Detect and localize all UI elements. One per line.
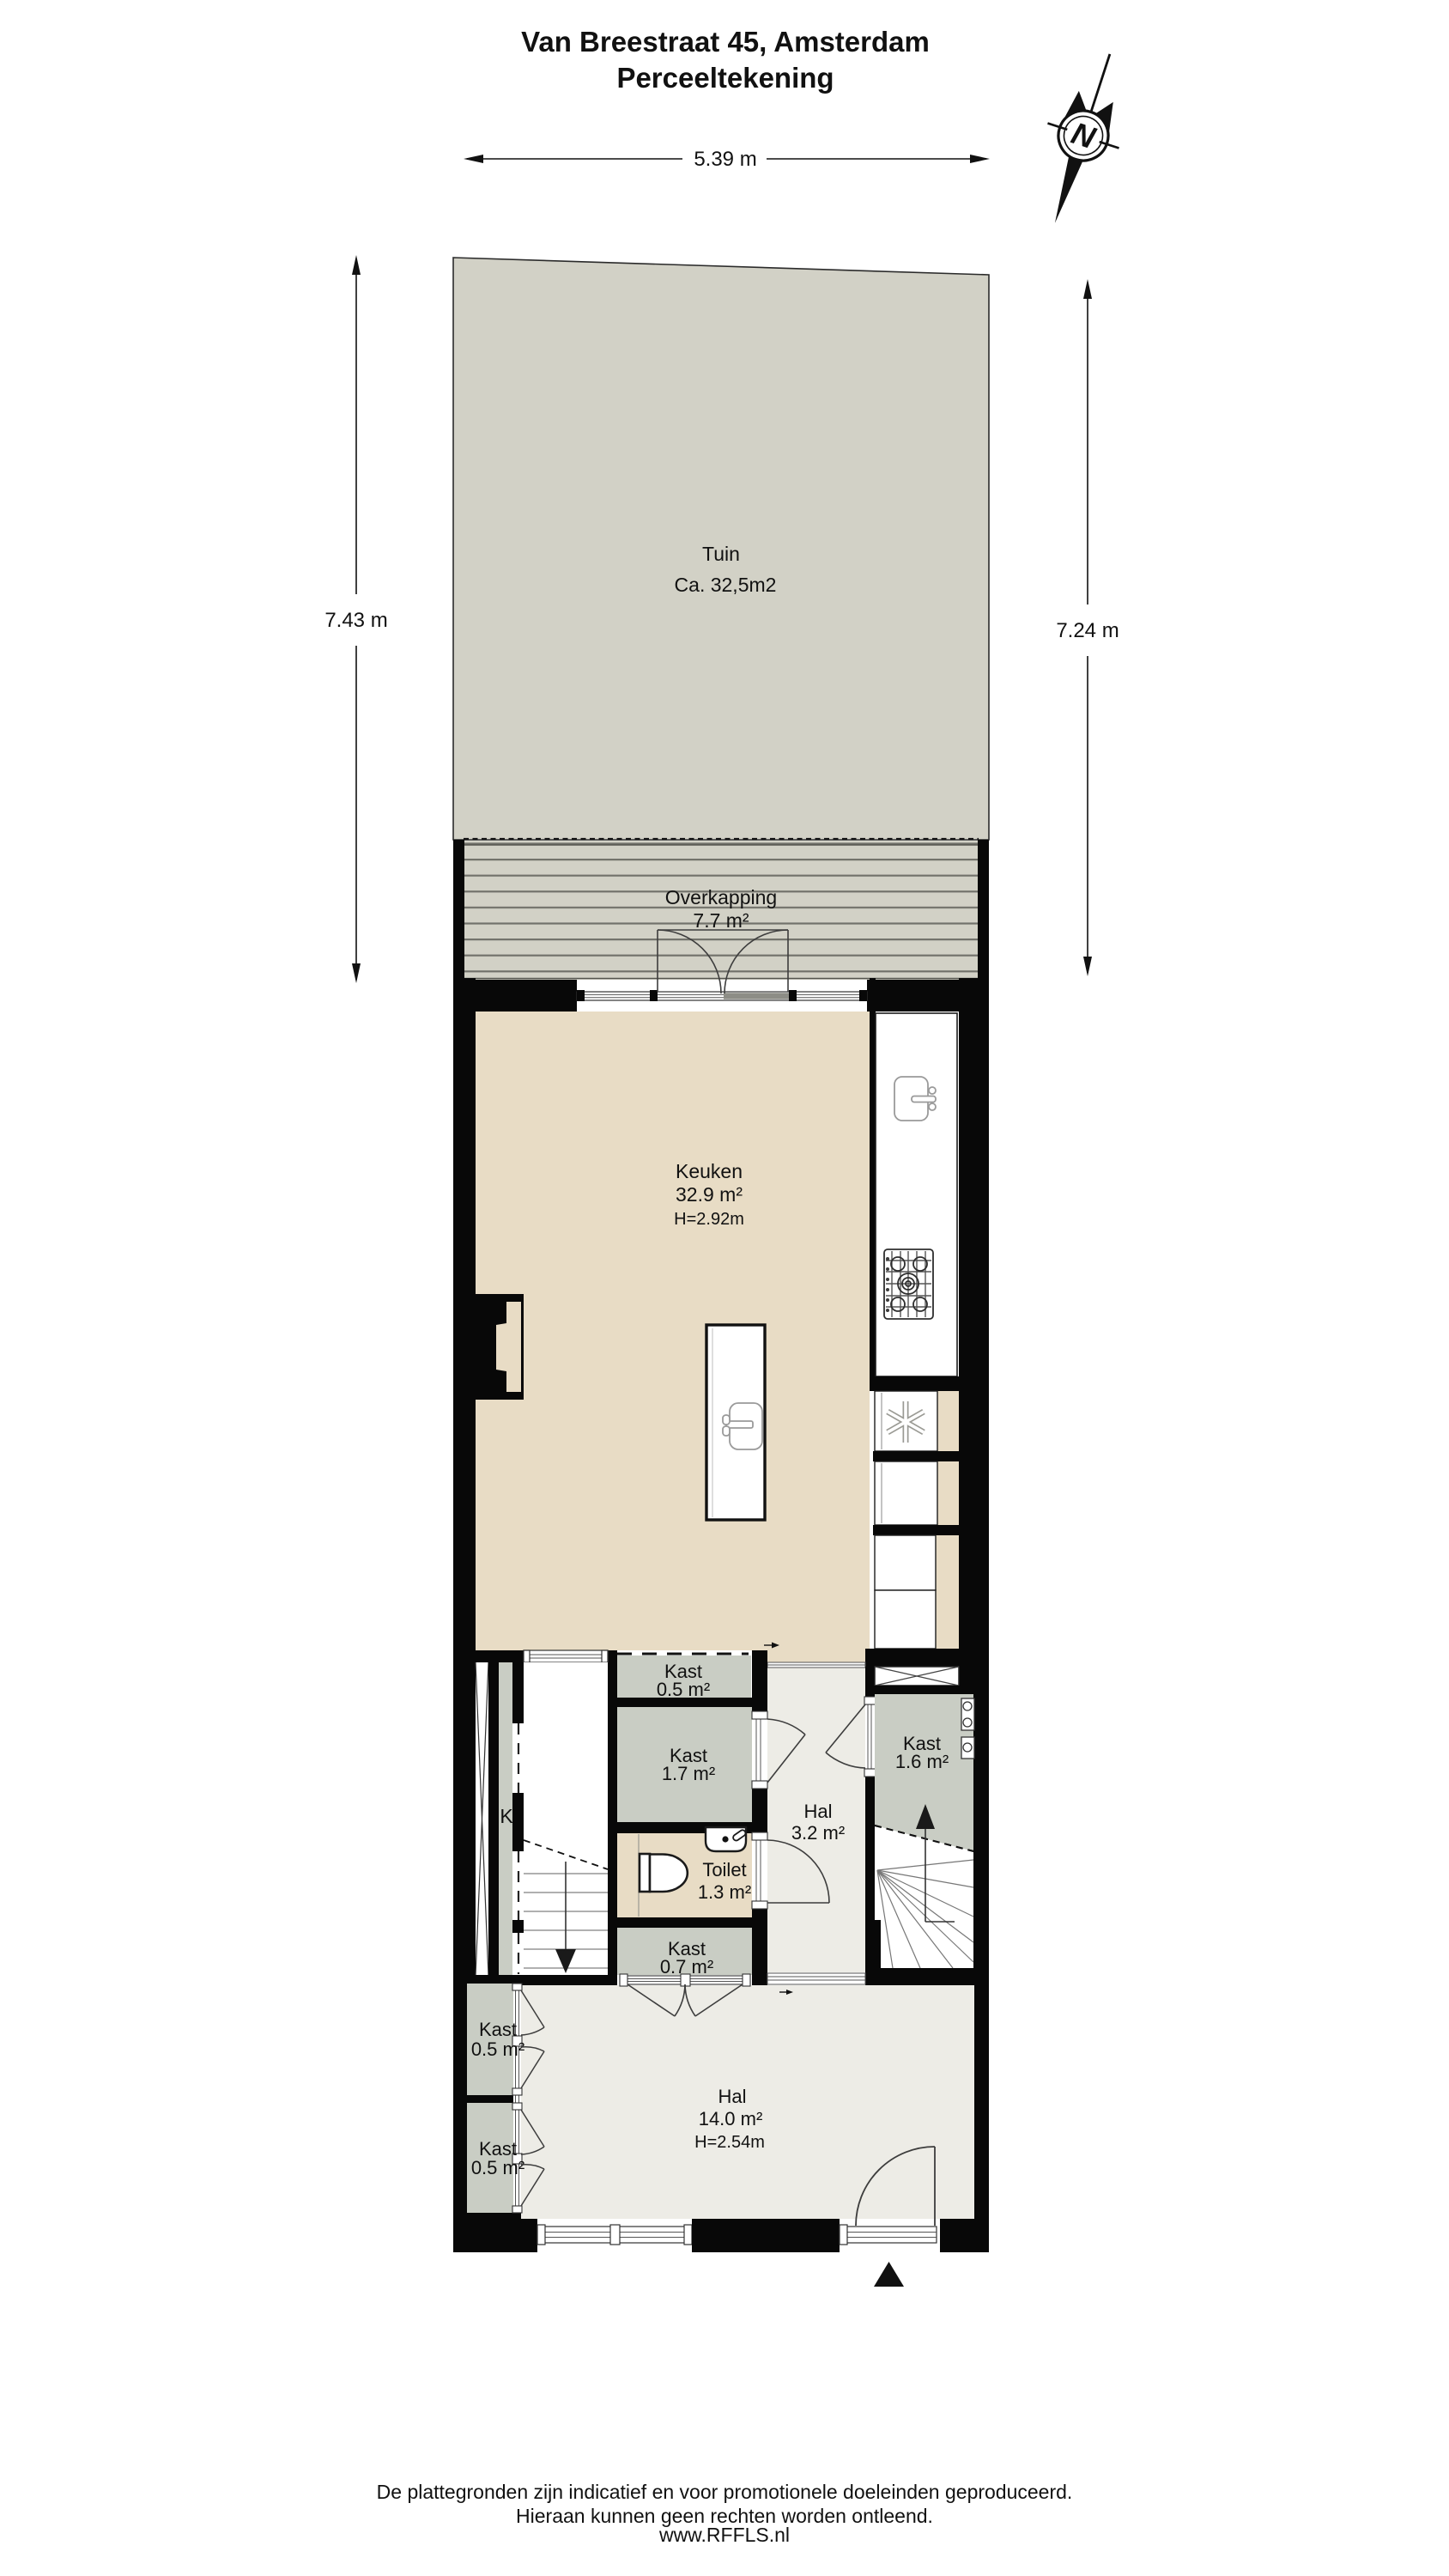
svg-text:0.5 m²: 0.5 m² [471, 2157, 524, 2178]
svg-text:5.39 m: 5.39 m [694, 148, 756, 171]
svg-text:K: K [500, 1805, 513, 1827]
svg-text:14.0 m²: 14.0 m² [699, 2108, 763, 2129]
svg-text:Overkapping: Overkapping [665, 886, 777, 908]
svg-text:De plattegronden zijn indicati: De plattegronden zijn indicatief en voor… [377, 2481, 1073, 2503]
svg-text:7.43 m: 7.43 m [324, 609, 387, 632]
svg-text:Hal: Hal [803, 1801, 832, 1822]
svg-text:Kast: Kast [479, 2019, 517, 2040]
svg-text:32.9 m²: 32.9 m² [676, 1183, 743, 1206]
svg-text:Keuken: Keuken [676, 1160, 743, 1182]
svg-text:Toilet: Toilet [702, 1859, 746, 1880]
svg-text:Van Breestraat 45, Amsterdam: Van Breestraat 45, Amsterdam [521, 26, 930, 58]
svg-text:0.5 m²: 0.5 m² [657, 1679, 710, 1700]
svg-text:1.7 m²: 1.7 m² [662, 1763, 715, 1784]
svg-text:7.7 m²: 7.7 m² [693, 909, 749, 932]
svg-text:7.24 m: 7.24 m [1056, 619, 1119, 642]
svg-text:Tuin: Tuin [702, 543, 740, 565]
svg-text:www.RFFLS.nl: www.RFFLS.nl [658, 2524, 790, 2546]
svg-text:Perceeltekening: Perceeltekening [616, 62, 834, 94]
svg-text:Hal: Hal [718, 2086, 746, 2107]
svg-text:Ca. 32,5m2: Ca. 32,5m2 [675, 574, 777, 596]
svg-text:H=2.92m: H=2.92m [674, 1210, 744, 1229]
svg-text:1.3 m²: 1.3 m² [698, 1881, 751, 1903]
svg-text:H=2.54m: H=2.54m [694, 2133, 765, 2152]
svg-text:0.5 m²: 0.5 m² [471, 2038, 524, 2060]
svg-text:3.2 m²: 3.2 m² [791, 1822, 845, 1844]
svg-text:1.6 m²: 1.6 m² [895, 1751, 949, 1772]
